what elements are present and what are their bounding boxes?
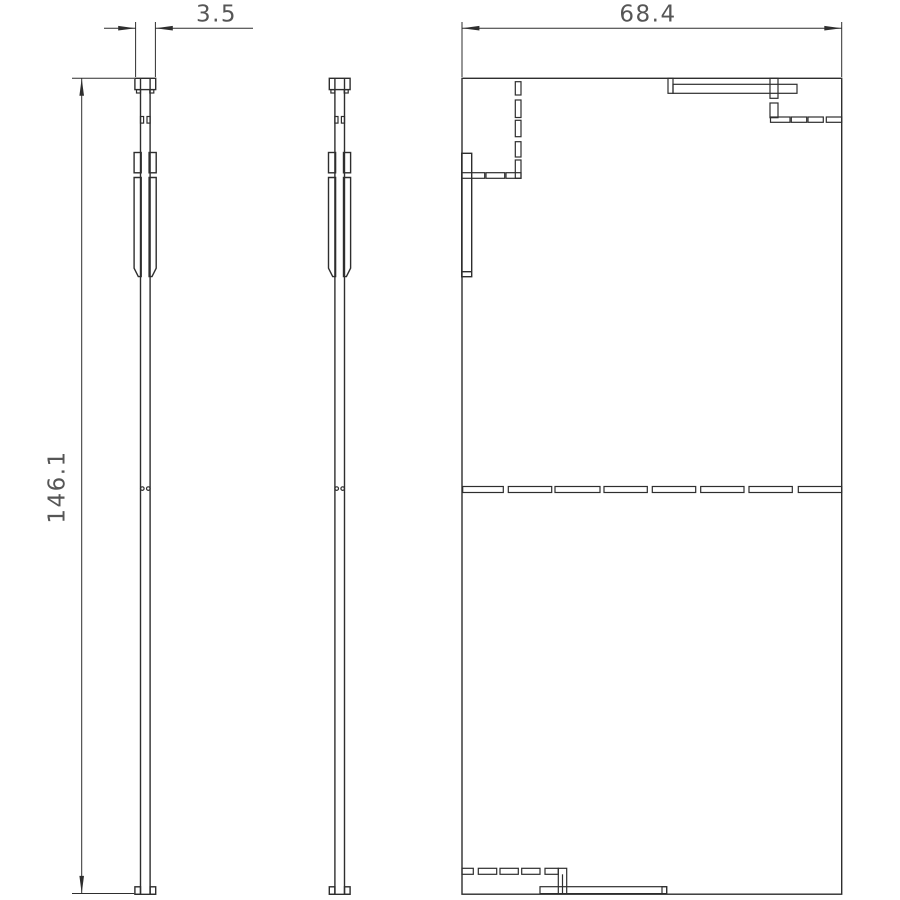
rail-segment bbox=[486, 173, 505, 179]
dash-segment bbox=[604, 487, 647, 493]
dash-segment bbox=[652, 487, 695, 493]
dash-segment bbox=[478, 868, 496, 874]
rail-segment bbox=[808, 117, 823, 122]
dimension-label-width: 68.4 bbox=[619, 2, 676, 28]
rail-segment bbox=[506, 173, 521, 179]
arrowhead-left-icon bbox=[462, 26, 479, 31]
arrowhead-down-icon bbox=[79, 876, 84, 894]
dimension-label-thickness: 3.5 bbox=[196, 2, 237, 28]
dash-segment bbox=[545, 868, 558, 874]
dash-segment bbox=[515, 160, 521, 178]
rail-segment bbox=[826, 117, 841, 122]
side-view-left bbox=[134, 78, 156, 894]
dash-segment bbox=[500, 868, 518, 874]
dash-segment bbox=[462, 868, 473, 874]
dash-segment bbox=[515, 82, 521, 95]
drawing-canvas: 3.5 68.4 146.1 bbox=[0, 0, 900, 900]
dash-segment bbox=[463, 487, 504, 493]
dash-segment bbox=[749, 487, 792, 493]
top-right-slot bbox=[668, 78, 797, 98]
rail-left bbox=[462, 173, 521, 179]
arrowhead-right-icon bbox=[824, 26, 841, 31]
dash-segment bbox=[515, 142, 521, 157]
rail-segment bbox=[462, 173, 485, 179]
dash-segment bbox=[522, 868, 540, 874]
slot-outline bbox=[462, 153, 472, 276]
front-view bbox=[462, 78, 842, 894]
bottom-rail bbox=[540, 887, 667, 894]
dash-segment bbox=[555, 487, 600, 493]
technical-drawing: 3.5 68.4 146.1 bbox=[0, 0, 900, 900]
dash-segment bbox=[508, 487, 551, 493]
slot-cross-tab bbox=[770, 78, 778, 98]
dimension-height: 146.1 bbox=[45, 78, 135, 893]
slot-stub bbox=[668, 78, 673, 93]
rail-segment bbox=[791, 117, 806, 122]
hidden-band-vertical-left bbox=[515, 82, 521, 179]
dash-segment bbox=[515, 100, 521, 118]
bracket-vertical bbox=[770, 103, 778, 118]
arrowhead-right-icon bbox=[118, 26, 135, 31]
rail-end-stub bbox=[662, 887, 667, 894]
hidden-band-middle bbox=[463, 487, 842, 493]
dimension-label-height: 146.1 bbox=[45, 450, 71, 523]
dimension-thickness: 3.5 bbox=[104, 2, 253, 78]
rail-outline bbox=[540, 887, 667, 894]
hidden-band-bottom-left bbox=[462, 868, 567, 893]
dimension-width: 68.4 bbox=[462, 2, 842, 78]
dash-segment bbox=[701, 487, 744, 493]
left-edge-slot bbox=[462, 153, 472, 276]
right-bracket bbox=[770, 103, 842, 122]
dash-segment bbox=[798, 487, 841, 493]
side-view-middle bbox=[329, 78, 351, 894]
dash-segment bbox=[515, 120, 521, 136]
arrowhead-left-icon bbox=[155, 26, 172, 31]
arrowhead-up-icon bbox=[79, 78, 84, 95]
